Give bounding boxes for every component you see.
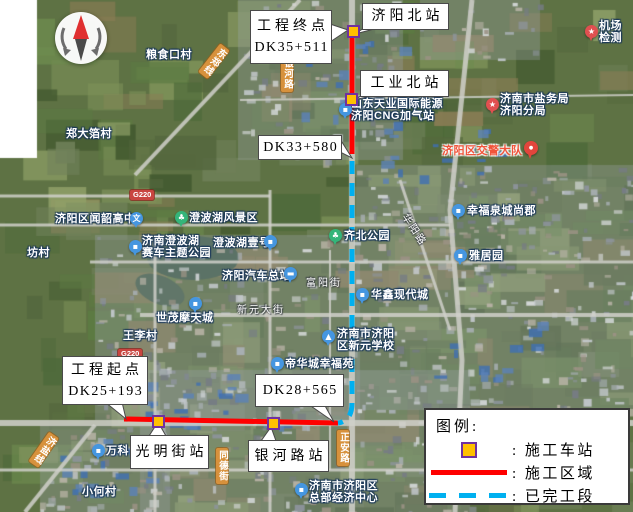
building-icon: ▪	[129, 240, 142, 253]
road-xinyuan-street: 新元大街	[237, 301, 285, 316]
callout-dk28-text: DK28+565	[261, 380, 338, 401]
poi-wenshao-highschool: 济阳区闻韶高中	[55, 213, 136, 225]
poi-traffic-police-text: 济阳区交警大队	[442, 145, 523, 157]
poi-xinyuan-school: 济南市济阳区新元学校	[337, 328, 395, 352]
station-marker-yinhe-road	[267, 417, 280, 430]
poi-xiaohe-village-text: 小何村	[82, 486, 117, 498]
school-glyph: ▲	[325, 333, 331, 341]
callout-dk33: DK33+580	[258, 135, 342, 160]
badge-tongde-street: 同德街	[216, 448, 228, 484]
park-glyph: ♣	[332, 232, 339, 240]
station-marker-gongye-north	[345, 93, 358, 106]
building-icon: ▪	[264, 235, 277, 248]
building-glyph: ▪	[268, 238, 273, 246]
poi-liangshikou-village: 粮食口村	[146, 49, 192, 61]
building-icon: ▪	[271, 357, 284, 370]
poi-xingfu-quancheng-shangjun-text: 幸福泉城尚郡	[467, 205, 536, 217]
poi-cng-station-text: 山东天业国际能源	[351, 98, 443, 110]
poi-yajuyuan: 雅居园	[469, 250, 504, 262]
building-glyph: ▪	[456, 207, 461, 215]
map-figure: 工程终点DK35+511济阳北站工业北站DK33+580工程起点DK25+193…	[0, 0, 633, 512]
station-swatch	[461, 442, 477, 458]
callout-project-start-text: 工程起点	[67, 360, 143, 381]
poi-cng-station-text: 济阳CNG加气站	[351, 110, 443, 122]
star-icon: ★	[486, 98, 499, 111]
building-icon: ▪	[454, 249, 467, 262]
callout-dk33-text: DK33+580	[262, 137, 339, 158]
station-marker-guangming-street	[152, 415, 165, 428]
compass-icon	[51, 8, 111, 68]
building-glyph: ▪	[360, 291, 365, 299]
poi-airport-checkpoint-text: 检测	[599, 32, 622, 44]
building-glyph: ▪	[96, 447, 101, 455]
poi-wangli-village: 王李村	[123, 330, 158, 342]
callout-dk28: DK28+565	[255, 374, 344, 407]
poi-traffic-police: 济阳区交警大队	[442, 145, 523, 157]
poi-airport-checkpoint-text: 机场	[599, 20, 622, 32]
poi-shimao-motian-city: 世茂摩天城	[156, 312, 214, 324]
building-icon: ▪	[452, 204, 465, 217]
poi-xinyuan-school-text: 区新元学校	[337, 340, 395, 352]
poi-chengbo-lake-scenic: 澄波湖风景区	[189, 212, 258, 224]
bus-glyph: ▬	[287, 270, 295, 278]
star-icon: ★	[585, 25, 598, 38]
poi-chengbohu-yihao: 澄波湖壹号	[213, 237, 271, 249]
poi-shimao-motian-city-text: 世茂摩天城	[156, 312, 214, 324]
legend-label-station: : 施工车站	[512, 439, 595, 460]
poi-yajuyuan-text: 雅居园	[469, 250, 504, 262]
legend: 图例: : 施工车站 : 施工区域 : 已完工段	[424, 408, 630, 505]
building-glyph: ▪	[193, 300, 198, 308]
legend-title: 图例:	[436, 415, 628, 436]
building-icon: ▪	[295, 483, 308, 496]
dashed-line-swatch	[429, 493, 509, 498]
callout-yinhe-road-station: 银河路站	[248, 440, 329, 472]
callout-gongye-north-station: 工业北站	[360, 70, 449, 97]
poi-racing-theme-park-text: 济南澄波湖	[142, 235, 211, 247]
poi-salt-bureau: 济南市盐务局济阳分局	[500, 93, 569, 117]
poi-zhengdabo-village-text: 郑大箔村	[66, 128, 112, 140]
park-icon: ♣	[329, 229, 342, 242]
building-glyph: ▪	[275, 360, 280, 368]
poi-zhengdabo-village: 郑大箔村	[66, 128, 112, 140]
poi-qibei-park: 齐北公园	[344, 230, 390, 242]
building-icon: ▪	[189, 297, 202, 310]
building-icon: ▪	[356, 288, 369, 301]
callout-jiyang-north-station-text: 济阳北站	[368, 6, 444, 27]
pin-icon: ●	[524, 141, 538, 155]
station-marker-jiyang-north	[347, 25, 360, 38]
poi-hq-economic-center: 济南市济阳区总部经济中心	[309, 480, 378, 504]
poi-hq-economic-center-text: 总部经济中心	[309, 492, 378, 504]
road-fuyang-street: 富阳街	[306, 274, 342, 289]
callout-guangming-street-station-text: 光明街站	[132, 442, 208, 463]
park-icon: ♣	[175, 211, 188, 224]
school-icon: ▲	[322, 330, 335, 343]
star-glyph: ★	[489, 101, 496, 109]
poi-fang-village-text: 坊村	[27, 247, 50, 259]
building-glyph: ▪	[133, 243, 138, 251]
poi-racing-theme-park: 济南澄波湖赛车主题公园	[142, 235, 211, 259]
legend-item-completed-section: : 已完工段	[426, 484, 628, 507]
building-glyph: ▪	[458, 252, 463, 260]
building-glyph: ▪	[343, 106, 348, 114]
poi-vanke: 万科	[106, 445, 129, 457]
badge-g220-north: G220	[130, 190, 154, 200]
poi-chengbohu-yihao-text: 澄波湖壹号	[213, 237, 271, 249]
callout-yinhe-road-station-text: 银河路站	[251, 446, 327, 467]
callout-gongye-north-station-text: 工业北站	[367, 73, 443, 94]
poi-racing-theme-park-text: 赛车主题公园	[142, 247, 211, 259]
poi-fang-village: 坊村	[27, 247, 50, 259]
pin-glyph: ●	[529, 146, 533, 151]
callout-project-end: 工程终点DK35+511	[250, 10, 332, 64]
poi-salt-bureau-text: 济阳分局	[500, 105, 569, 117]
wen-icon: 文	[130, 212, 143, 225]
poi-xiaohe-village: 小何村	[82, 486, 117, 498]
building-glyph: ▪	[299, 486, 304, 494]
callout-project-start-text: DK25+193	[67, 381, 144, 402]
poi-cng-station: 山东天业国际能源济阳CNG加气站	[351, 98, 443, 122]
solid-line-swatch	[431, 470, 507, 475]
badge-zhengan-road: 正安路	[337, 430, 349, 466]
legend-item-station: : 施工车站	[426, 438, 628, 461]
legend-label-construction-zone: : 施工区域	[512, 462, 595, 483]
poi-airport-checkpoint: 机场检测	[599, 20, 622, 44]
poi-jiyang-bus-terminal: 济阳汽车总站	[222, 270, 291, 282]
poi-dihua-xingfu-garden-text: 帝华城幸福苑	[285, 358, 354, 370]
legend-item-construction-zone: : 施工区域	[426, 461, 628, 484]
poi-xingfu-quancheng-shangjun: 幸福泉城尚郡	[467, 205, 536, 217]
bus-icon: ▬	[284, 267, 297, 280]
wen-glyph: 文	[133, 215, 141, 223]
callout-project-start: 工程起点DK25+193	[62, 356, 148, 405]
legend-label-completed-section: : 已完工段	[512, 485, 595, 506]
poi-wangli-village-text: 王李村	[123, 330, 158, 342]
callout-guangming-street-station: 光明街站	[130, 435, 209, 469]
poi-chengbo-lake-scenic-text: 澄波湖风景区	[189, 212, 258, 224]
callout-project-end-pointer	[330, 24, 348, 42]
callout-project-end-text: 工程终点	[253, 16, 329, 37]
park-glyph: ♣	[178, 214, 185, 222]
poi-wenshao-highschool-text: 济阳区闻韶高中	[55, 213, 136, 225]
poi-dihua-xingfu-garden: 帝华城幸福苑	[285, 358, 354, 370]
poi-xinyuan-school-text: 济南市济阳	[337, 328, 395, 340]
poi-hq-economic-center-text: 济南市济阳区	[309, 480, 378, 492]
star-glyph: ★	[588, 28, 595, 36]
poi-jiyang-bus-terminal-text: 济阳汽车总站	[222, 270, 291, 282]
poi-huaxin-modern-city-text: 华鑫现代城	[371, 289, 429, 301]
poi-huaxin-modern-city: 华鑫现代城	[371, 289, 429, 301]
poi-qibei-park-text: 齐北公园	[344, 230, 390, 242]
poi-liangshikou-village-text: 粮食口村	[146, 49, 192, 61]
callout-jiyang-north-station: 济阳北站	[362, 3, 449, 30]
building-icon: ▪	[92, 444, 105, 457]
callout-project-end-text: DK35+511	[253, 37, 329, 58]
poi-salt-bureau-text: 济南市盐务局	[500, 93, 569, 105]
poi-vanke-text: 万科	[106, 445, 129, 457]
